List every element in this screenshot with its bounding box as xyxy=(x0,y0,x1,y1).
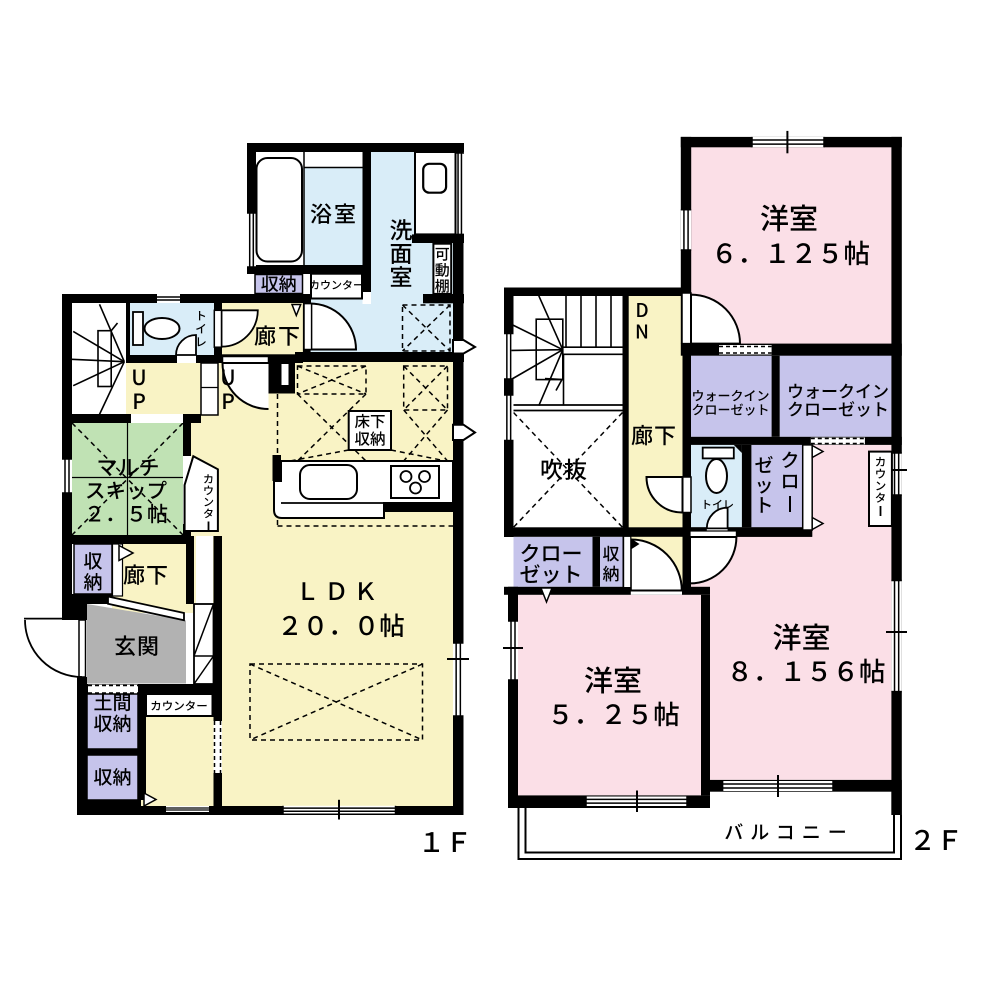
svg-text:吹抜: 吹抜 xyxy=(540,451,588,485)
svg-text:ＬＤＫ: ＬＤＫ xyxy=(296,572,383,607)
svg-text:ゼット: ゼット xyxy=(520,559,583,589)
svg-text:玄関: 玄関 xyxy=(114,629,160,661)
svg-text:P: P xyxy=(221,386,235,416)
svg-text:レ: レ xyxy=(195,334,207,350)
svg-text:５．２５帖: ５．２５帖 xyxy=(547,693,680,732)
svg-text:廊下: 廊下 xyxy=(631,419,677,451)
svg-text:納: 納 xyxy=(83,568,102,595)
svg-text:廊下: 廊下 xyxy=(123,558,169,590)
svg-text:タ: タ xyxy=(875,490,887,506)
svg-text:６．１２５帖: ６．１２５帖 xyxy=(711,232,870,271)
svg-text:収納: 収納 xyxy=(261,271,297,297)
svg-text:収納: 収納 xyxy=(354,428,385,450)
svg-text:カウンター: カウンター xyxy=(309,277,364,293)
svg-text:N: N xyxy=(635,318,649,345)
svg-text:クローゼット: クローゼット xyxy=(691,400,769,419)
svg-text:ト: ト xyxy=(754,491,773,518)
svg-text:２Ｆ: ２Ｆ xyxy=(909,819,963,858)
svg-text:クローゼット: クローゼット xyxy=(787,396,889,421)
svg-text:２０．０帖: ２０．０帖 xyxy=(277,606,405,643)
svg-text:８．１５６帖: ８．１５６帖 xyxy=(727,650,886,689)
svg-text:P: P xyxy=(132,386,146,416)
svg-text:収納: 収納 xyxy=(93,710,131,737)
svg-text:室: 室 xyxy=(390,259,413,293)
svg-text:収納: 収納 xyxy=(93,763,131,790)
svg-text:浴室: 浴室 xyxy=(310,197,358,229)
svg-text:バルコニー: バルコニー xyxy=(724,818,854,845)
svg-text:トイレ: トイレ xyxy=(701,497,734,513)
svg-text:２．５帖: ２．５帖 xyxy=(84,499,168,529)
svg-text:カウンター: カウンター xyxy=(150,698,208,714)
svg-text:納: 納 xyxy=(603,560,620,585)
svg-text:タ: タ xyxy=(203,506,214,522)
svg-text:１Ｆ: １Ｆ xyxy=(418,821,472,860)
svg-text:棚: 棚 xyxy=(435,276,450,297)
svg-text:ロ: ロ xyxy=(780,467,799,494)
svg-text:廊下: 廊下 xyxy=(254,319,302,351)
